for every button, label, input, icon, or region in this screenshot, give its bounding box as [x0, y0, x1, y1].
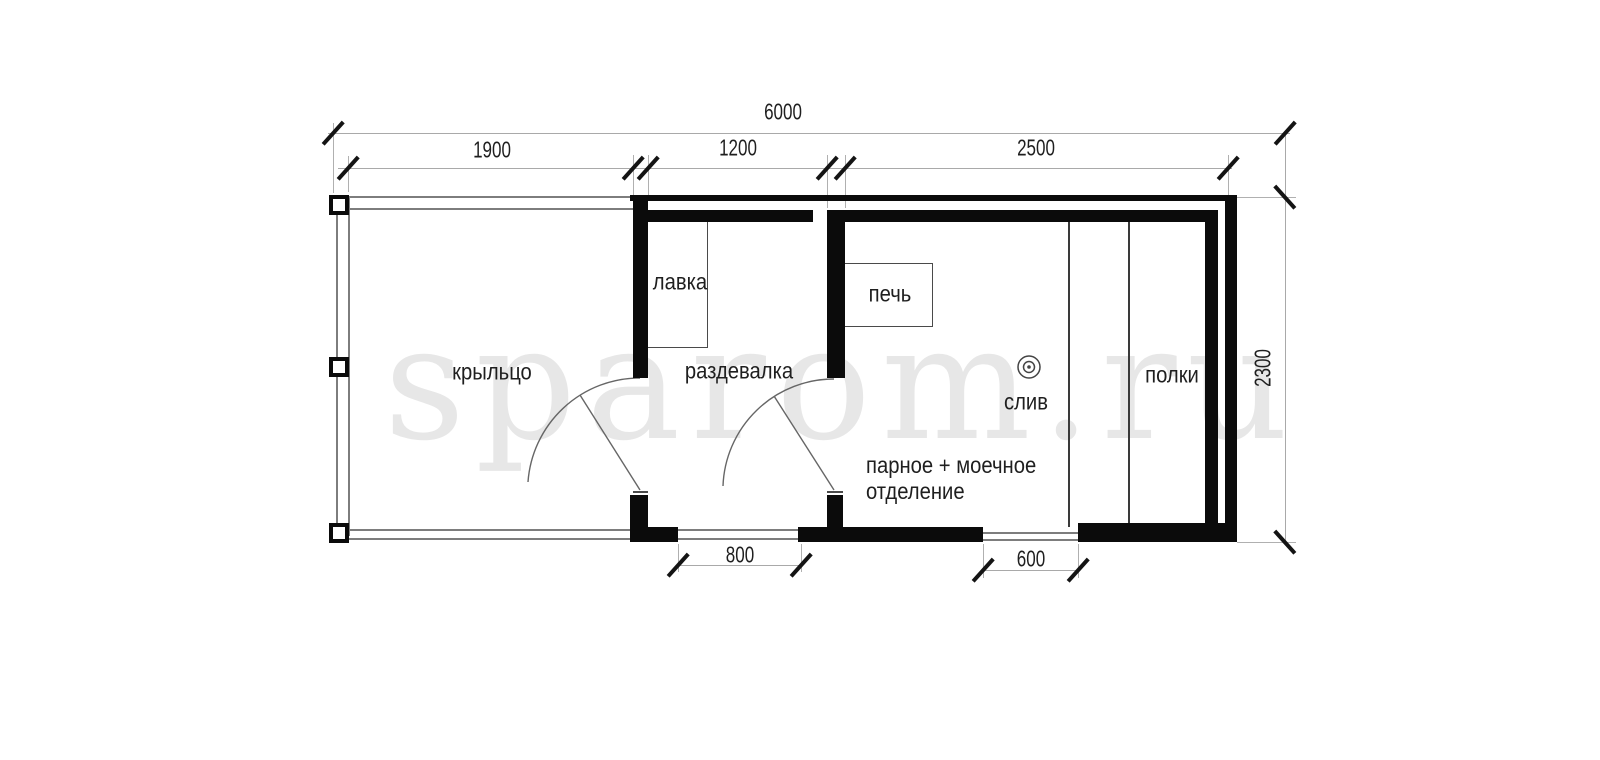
wall-stub-left-foot	[630, 527, 678, 542]
floor-plan-canvas: sparom.ru	[0, 0, 1600, 760]
dim-label-600: 600	[1012, 546, 1050, 573]
room-label-drain: слив	[1001, 389, 1051, 416]
dim-label-6000: 6000	[757, 99, 808, 126]
wall-bottom-middle	[798, 527, 983, 542]
room-label-bench: лавка	[649, 269, 711, 296]
drain-icon-center	[1027, 365, 1031, 369]
wall-top-dressing	[633, 210, 813, 222]
dim-label-2500: 2500	[1010, 135, 1061, 162]
dim-label-2300: 2300	[1250, 349, 1277, 387]
room-label-porch: крыльцо	[447, 359, 538, 386]
dim-label-1900: 1900	[466, 137, 517, 164]
door-swing-arc-porch	[528, 378, 640, 482]
room-label-dressing: раздевалка	[677, 358, 800, 385]
door-leaf-steam	[774, 396, 834, 490]
door-swing-arc-steam	[723, 379, 834, 486]
porch-post-top	[329, 195, 349, 215]
wall-top-steam	[827, 210, 1218, 222]
wall-left	[633, 195, 648, 378]
wall-right-inner	[1205, 210, 1218, 528]
wall-right-outer	[1225, 195, 1237, 542]
wall-top-outer	[630, 195, 1237, 201]
dim-label-800: 800	[721, 542, 759, 569]
wall-bottom-right	[1078, 523, 1237, 542]
room-label-steam: парное + моечное отделение	[866, 452, 1059, 504]
porch-post-middle	[329, 357, 349, 377]
room-label-shelves: полки	[1141, 362, 1202, 389]
door-leaf-porch	[580, 395, 640, 490]
room-label-stove: печь	[866, 281, 914, 308]
porch-post-bottom	[329, 523, 349, 543]
dim-label-1200: 1200	[712, 135, 763, 162]
wall-divider	[827, 210, 845, 378]
